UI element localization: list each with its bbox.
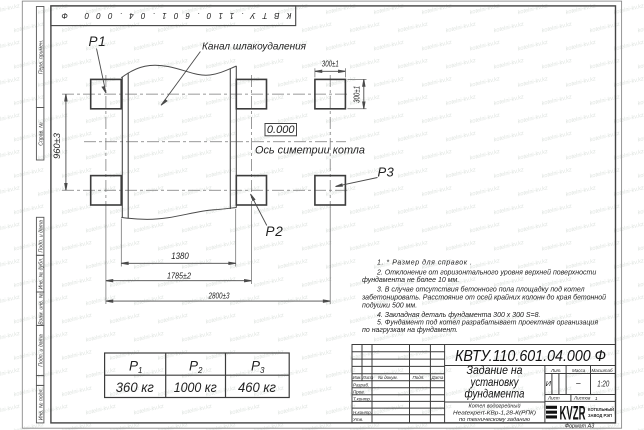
- svg-text:kotelni-kv.kz: kotelni-kv.kz: [469, 113, 501, 126]
- svg-text:kotelni-kv.kz: kotelni-kv.kz: [541, 167, 573, 180]
- svg-text:kotelni-kv.kz: kotelni-kv.kz: [373, 222, 405, 235]
- svg-text:kotelni-kv.kz: kotelni-kv.kz: [493, 240, 525, 253]
- svg-text:Дата: Дата: [431, 375, 444, 380]
- svg-text:kotelni-kv.kz: kotelni-kv.kz: [469, 40, 501, 53]
- svg-text:подушки 500 мм.: подушки 500 мм.: [362, 301, 417, 309]
- svg-text:kotelni-kv.kz: kotelni-kv.kz: [637, 386, 644, 399]
- svg-text:300±1: 300±1: [322, 59, 339, 68]
- svg-text:kotelni-kv.kz: kotelni-kv.kz: [61, 313, 93, 326]
- svg-text:kotelni-kv.kz: kotelni-kv.kz: [277, 404, 309, 417]
- svg-text:kotelni-kv.kz: kotelni-kv.kz: [397, 131, 429, 144]
- svg-text:kotelni-kv.kz: kotelni-kv.kz: [517, 222, 549, 235]
- svg-text:kotelni-kv.kz: kotelni-kv.kz: [445, 167, 477, 180]
- svg-text:kotelni-kv.kz: kotelni-kv.kz: [541, 94, 573, 107]
- svg-text:kotelni-kv.kz: kotelni-kv.kz: [301, 313, 333, 326]
- svg-text:kotelni-kv.kz: kotelni-kv.kz: [301, 276, 333, 289]
- svg-text:1380: 1380: [171, 251, 189, 261]
- svg-text:kotelni-kv.kz: kotelni-kv.kz: [349, 204, 381, 217]
- svg-text:2. Отклонение от горизонтально: 2. Отклонение от горизонтального уровня …: [376, 268, 596, 276]
- svg-text:kotelni-kv.kz: kotelni-kv.kz: [229, 331, 261, 344]
- svg-text:kotelni-kv.kz: kotelni-kv.kz: [109, 240, 141, 253]
- svg-text:kotelni-kv.kz: kotelni-kv.kz: [13, 167, 45, 180]
- svg-text:kotelni-kv.kz: kotelni-kv.kz: [349, 313, 381, 326]
- svg-text:P1: P1: [89, 34, 107, 49]
- svg-text:kotelni-kv.kz: kotelni-kv.kz: [277, 367, 309, 380]
- svg-text:kotelni-kv.kz: kotelni-kv.kz: [517, 149, 549, 162]
- svg-text:kotelni-kv.kz: kotelni-kv.kz: [205, 313, 237, 326]
- svg-text:Н.контр.: Н.контр.: [353, 410, 372, 415]
- svg-text:фундамента не более 10 мм.: фундамента не более 10 мм.: [362, 276, 459, 284]
- svg-text:kotelni-kv.kz: kotelni-kv.kz: [61, 204, 93, 217]
- svg-text:kotelni-kv.kz: kotelni-kv.kz: [349, 131, 381, 144]
- svg-text:kotelni-kv.kz: kotelni-kv.kz: [181, 185, 213, 198]
- svg-text:kotelni-kv.kz: kotelni-kv.kz: [397, 167, 429, 180]
- svg-text:Инв. № подл.: Инв. № подл.: [38, 388, 44, 420]
- svg-text:kotelni-kv.kz: kotelni-kv.kz: [229, 258, 261, 271]
- svg-text:0.000: 0.000: [267, 124, 295, 136]
- svg-text:КОТЕЛЬНЫЙ: КОТЕЛЬНЫЙ: [588, 407, 614, 412]
- svg-text:kotelni-kv.kz: kotelni-kv.kz: [133, 331, 165, 344]
- svg-text:Котел водогрейный: Котел водогрейный: [469, 403, 521, 410]
- svg-text:kotelni-kv.kz: kotelni-kv.kz: [469, 149, 501, 162]
- svg-text:kotelni-kv.kz: kotelni-kv.kz: [157, 58, 189, 71]
- svg-text:kotelni-kv.kz: kotelni-kv.kz: [301, 349, 333, 362]
- svg-text:kotelni-kv.kz: kotelni-kv.kz: [0, 258, 21, 271]
- svg-text:забетонировать. Расстояние от: забетонировать. Расстояние от осей крайн…: [361, 293, 606, 301]
- svg-text:4. Закладная деталь фундамента: 4. Закладная деталь фундамента 300 х 300…: [377, 311, 541, 319]
- svg-text:kotelni-kv.kz: kotelni-kv.kz: [637, 349, 644, 362]
- svg-text:kotelni-kv.kz: kotelni-kv.kz: [445, 22, 477, 35]
- svg-text:kotelni-kv.kz: kotelni-kv.kz: [565, 113, 597, 126]
- svg-text:kotelni-kv.kz: kotelni-kv.kz: [85, 222, 117, 235]
- svg-text:фундамента: фундамента: [465, 387, 525, 401]
- svg-text:kotelni-kv.kz: kotelni-kv.kz: [85, 185, 117, 198]
- svg-text:kotelni-kv.kz: kotelni-kv.kz: [133, 76, 165, 89]
- svg-text:kotelni-kv.kz: kotelni-kv.kz: [205, 276, 237, 289]
- svg-text:kotelni-kv.kz: kotelni-kv.kz: [61, 276, 93, 289]
- svg-text:360 кг: 360 кг: [116, 379, 154, 395]
- svg-text:960±3: 960±3: [52, 133, 62, 159]
- svg-text:Лист: Лист: [362, 375, 374, 380]
- svg-text:kotelni-kv.kz: kotelni-kv.kz: [541, 22, 573, 35]
- svg-text:kotelni-kv.kz: kotelni-kv.kz: [469, 222, 501, 235]
- svg-text:kotelni-kv.kz: kotelni-kv.kz: [637, 167, 644, 180]
- svg-text:kotelni-kv.kz: kotelni-kv.kz: [133, 222, 165, 235]
- svg-text:kotelni-kv.kz: kotelni-kv.kz: [373, 76, 405, 89]
- svg-text:kotelni-kv.kz: kotelni-kv.kz: [301, 240, 333, 253]
- svg-text:kotelni-kv.kz: kotelni-kv.kz: [61, 349, 93, 362]
- svg-text:kotelni-kv.kz: kotelni-kv.kz: [85, 76, 117, 89]
- svg-text:Лист: Лист: [547, 396, 560, 401]
- svg-text:kotelni-kv.kz: kotelni-kv.kz: [253, 58, 285, 71]
- svg-text:kotelni-kv.kz: kotelni-kv.kz: [205, 167, 237, 180]
- svg-text:Перв. примен.: Перв. примен.: [38, 40, 44, 74]
- svg-text:kotelni-kv.kz: kotelni-kv.kz: [637, 58, 644, 71]
- svg-text:Инв. № дубл.: Инв. № дубл.: [38, 258, 44, 290]
- svg-text:kotelni-kv.kz: kotelni-kv.kz: [109, 276, 141, 289]
- svg-text:Подп.: Подп.: [413, 375, 425, 380]
- svg-text:kotelni-kv.kz: kotelni-kv.kz: [85, 258, 117, 271]
- svg-text:Справ. №: Справ. №: [38, 122, 44, 146]
- svg-text:kotelni-kv.kz: kotelni-kv.kz: [397, 94, 429, 107]
- svg-text:kotelni-kv.kz: kotelni-kv.kz: [109, 22, 141, 35]
- svg-text:kotelni-kv.kz: kotelni-kv.kz: [205, 58, 237, 71]
- svg-text:1785±2: 1785±2: [167, 270, 191, 280]
- svg-text:Масса: Масса: [572, 368, 586, 373]
- svg-text:kotelni-kv.kz: kotelni-kv.kz: [421, 76, 453, 89]
- svg-text:kotelni-kv.kz: kotelni-kv.kz: [565, 149, 597, 162]
- svg-text:kotelni-kv.kz: kotelni-kv.kz: [637, 422, 644, 430]
- svg-text:kotelni-kv.kz: kotelni-kv.kz: [301, 22, 333, 35]
- svg-text:kotelni-kv.kz: kotelni-kv.kz: [229, 76, 261, 89]
- svg-text:kotelni-kv.kz: kotelni-kv.kz: [181, 76, 213, 89]
- svg-text:kotelni-kv.kz: kotelni-kv.kz: [541, 58, 573, 71]
- svg-text:kotelni-kv.kz: kotelni-kv.kz: [181, 113, 213, 126]
- svg-text:kotelni-kv.kz: kotelni-kv.kz: [517, 76, 549, 89]
- svg-text:kotelni-kv.kz: kotelni-kv.kz: [253, 276, 285, 289]
- svg-text:kotelni-kv.kz: kotelni-kv.kz: [637, 22, 644, 35]
- svg-text:kotelni-kv.kz: kotelni-kv.kz: [445, 58, 477, 71]
- svg-text:P2: P2: [266, 224, 284, 239]
- svg-text:kotelni-kv.kz: kotelni-kv.kz: [637, 240, 644, 253]
- svg-text:kotelni-kv.kz: kotelni-kv.kz: [205, 22, 237, 35]
- svg-text:kotelni-kv.kz: kotelni-kv.kz: [0, 404, 21, 417]
- svg-text:460 кг: 460 кг: [238, 379, 276, 395]
- svg-text:kotelni-kv.kz: kotelni-kv.kz: [85, 149, 117, 162]
- svg-text:kotelni-kv.kz: kotelni-kv.kz: [373, 40, 405, 53]
- svg-text:kotelni-kv.kz: kotelni-kv.kz: [325, 40, 357, 53]
- svg-text:kotelni-kv.kz: kotelni-kv.kz: [445, 240, 477, 253]
- svg-text:kotelni-kv.kz: kotelni-kv.kz: [565, 40, 597, 53]
- svg-text:kotelni-kv.kz: kotelni-kv.kz: [85, 367, 117, 380]
- svg-text:Взам. инв. №: Взам. инв. №: [38, 292, 44, 324]
- svg-text:И: И: [546, 379, 552, 388]
- svg-text:kotelni-kv.kz: kotelni-kv.kz: [37, 185, 69, 198]
- svg-text:kotelni-kv.kz: kotelni-kv.kz: [0, 76, 21, 89]
- svg-text:kotelni-kv.kz: kotelni-kv.kz: [637, 131, 644, 144]
- svg-text:kotelni-kv.kz: kotelni-kv.kz: [541, 240, 573, 253]
- svg-text:Подп. и дата: Подп. и дата: [38, 220, 44, 253]
- svg-text:kotelni-kv.kz: kotelni-kv.kz: [397, 349, 429, 362]
- svg-text:kotelni-kv.kz: kotelni-kv.kz: [0, 295, 21, 308]
- svg-text:kotelni-kv.kz: kotelni-kv.kz: [109, 313, 141, 326]
- svg-text:Изм.: Изм.: [353, 375, 362, 380]
- svg-text:kotelni-kv.kz: kotelni-kv.kz: [0, 367, 21, 380]
- svg-text:по техническому заданию: по техническому заданию: [459, 417, 530, 423]
- svg-text:kotelni-kv.kz: kotelni-kv.kz: [301, 94, 333, 107]
- svg-text:kotelni-kv.kz: kotelni-kv.kz: [517, 331, 549, 344]
- svg-text:kotelni-kv.kz: kotelni-kv.kz: [541, 204, 573, 217]
- svg-text:kotelni-kv.kz: kotelni-kv.kz: [229, 113, 261, 126]
- svg-text:kotelni-kv.kz: kotelni-kv.kz: [397, 204, 429, 217]
- svg-text:kotelni-kv.kz: kotelni-kv.kz: [517, 40, 549, 53]
- svg-text:kotelni-kv.kz: kotelni-kv.kz: [469, 76, 501, 89]
- svg-text:1: 1: [595, 396, 598, 401]
- svg-text:kotelni-kv.kz: kotelni-kv.kz: [565, 76, 597, 89]
- svg-text:kotelni-kv.kz: kotelni-kv.kz: [61, 240, 93, 253]
- svg-text:KVZR: KVZR: [560, 402, 586, 424]
- svg-text:3. В случае отсутствия бетонно: 3. В случае отсутствия бетонного пола пл…: [377, 285, 585, 293]
- svg-text:kotelni-kv.kz: kotelni-kv.kz: [613, 185, 644, 198]
- svg-text:kotelni-kv.kz: kotelni-kv.kz: [565, 331, 597, 344]
- svg-text:kotelni-kv.kz: kotelni-kv.kz: [37, 76, 69, 89]
- svg-text:kotelni-kv.kz: kotelni-kv.kz: [301, 167, 333, 180]
- svg-text:№ докум.: № докум.: [378, 375, 398, 380]
- svg-text:kotelni-kv.kz: kotelni-kv.kz: [85, 404, 117, 417]
- svg-text:Формат А3: Формат А3: [565, 424, 595, 430]
- svg-text:kotelni-kv.kz: kotelni-kv.kz: [493, 204, 525, 217]
- svg-text:kotelni-kv.kz: kotelni-kv.kz: [61, 58, 93, 71]
- svg-text:kotelni-kv.kz: kotelni-kv.kz: [0, 149, 21, 162]
- svg-text:P1: P1: [129, 359, 142, 376]
- svg-text:Утв.: Утв.: [353, 417, 363, 422]
- svg-text:kotelni-kv.kz: kotelni-kv.kz: [133, 113, 165, 126]
- svg-text:kotelni-kv.kz: kotelni-kv.kz: [349, 22, 381, 35]
- svg-text:kotelni-kv.kz: kotelni-kv.kz: [205, 240, 237, 253]
- svg-text:Масштаб: Масштаб: [592, 368, 613, 373]
- svg-text:kotelni-kv.kz: kotelni-kv.kz: [253, 22, 285, 35]
- svg-text:по нагрузкам на фундамент.: по нагрузкам на фундамент.: [362, 326, 458, 334]
- svg-text:P2: P2: [189, 359, 203, 376]
- svg-text:kotelni-kv.kz: kotelni-kv.kz: [397, 240, 429, 253]
- svg-text:kotelni-kv.kz: kotelni-kv.kz: [61, 22, 93, 35]
- svg-text:kotelni-kv.kz: kotelni-kv.kz: [349, 58, 381, 71]
- svg-text:kotelni-kv.kz: kotelni-kv.kz: [445, 204, 477, 217]
- svg-text:kotelni-kv.kz: kotelni-kv.kz: [373, 185, 405, 198]
- svg-text:Лит.: Лит.: [550, 368, 562, 373]
- svg-text:kotelni-kv.kz: kotelni-kv.kz: [613, 3, 644, 16]
- svg-text:kotelni-kv.kz: kotelni-kv.kz: [301, 386, 333, 399]
- svg-text:kotelni-kv.kz: kotelni-kv.kz: [373, 113, 405, 126]
- svg-text:300±1: 300±1: [353, 86, 362, 103]
- svg-text:kotelni-kv.kz: kotelni-kv.kz: [61, 386, 93, 399]
- svg-text:kotelni-kv.kz: kotelni-kv.kz: [637, 204, 644, 217]
- svg-text:kotelni-kv.kz: kotelni-kv.kz: [13, 94, 45, 107]
- svg-text:kotelni-kv.kz: kotelni-kv.kz: [373, 149, 405, 162]
- svg-text:kotelni-kv.kz: kotelni-kv.kz: [613, 113, 644, 126]
- svg-text:kotelni-kv.kz: kotelni-kv.kz: [253, 94, 285, 107]
- svg-text:kotelni-kv.kz: kotelni-kv.kz: [277, 331, 309, 344]
- svg-text:kotelni-kv.kz: kotelni-kv.kz: [109, 167, 141, 180]
- svg-text:kotelni-kv.kz: kotelni-kv.kz: [493, 167, 525, 180]
- svg-text:kotelni-kv.kz: kotelni-kv.kz: [493, 22, 525, 35]
- svg-text:kotelni-kv.kz: kotelni-kv.kz: [421, 185, 453, 198]
- svg-text:kotelni-kv.kz: kotelni-kv.kz: [229, 404, 261, 417]
- svg-text:kotelni-kv.kz: kotelni-kv.kz: [445, 94, 477, 107]
- svg-text:Разраб.: Разраб.: [353, 383, 369, 388]
- svg-text:kotelni-kv.kz: kotelni-kv.kz: [349, 240, 381, 253]
- svg-text:kotelni-kv.kz: kotelni-kv.kz: [133, 185, 165, 198]
- svg-text:kotelni-kv.kz: kotelni-kv.kz: [397, 22, 429, 35]
- svg-text:kotelni-kv.kz: kotelni-kv.kz: [469, 185, 501, 198]
- svg-text:kotelni-kv.kz: kotelni-kv.kz: [541, 131, 573, 144]
- svg-text:kotelni-kv.kz: kotelni-kv.kz: [613, 331, 644, 344]
- svg-text:ЗАВОД РЭП: ЗАВОД РЭП: [588, 413, 612, 418]
- svg-text:kotelni-kv.kz: kotelni-kv.kz: [613, 258, 644, 271]
- svg-text:Подп. и дата: Подп. и дата: [38, 334, 44, 367]
- svg-text:kotelni-kv.kz: kotelni-kv.kz: [0, 40, 21, 53]
- svg-text:kotelni-kv.kz: kotelni-kv.kz: [517, 185, 549, 198]
- svg-text:kotelni-kv.kz: kotelni-kv.kz: [613, 404, 644, 417]
- svg-text:kotelni-kv.kz: kotelni-kv.kz: [613, 222, 644, 235]
- svg-text:kotelni-kv.kz: kotelni-kv.kz: [277, 76, 309, 89]
- svg-text:1:20: 1:20: [597, 379, 609, 388]
- svg-text:Т.контр.: Т.контр.: [353, 397, 371, 402]
- svg-text:2800±3: 2800±3: [208, 291, 230, 301]
- svg-text:Пров.: Пров.: [353, 390, 365, 395]
- svg-text:kotelni-kv.kz: kotelni-kv.kz: [613, 40, 644, 53]
- svg-text:kotelni-kv.kz: kotelni-kv.kz: [181, 222, 213, 235]
- svg-text:kotelni-kv.kz: kotelni-kv.kz: [13, 22, 45, 35]
- svg-text:kotelni-kv.kz: kotelni-kv.kz: [229, 185, 261, 198]
- svg-text:kotelni-kv.kz: kotelni-kv.kz: [0, 113, 21, 126]
- svg-text:kotelni-kv.kz: kotelni-kv.kz: [349, 349, 381, 362]
- svg-text:kotelni-kv.kz: kotelni-kv.kz: [397, 58, 429, 71]
- svg-text:kotelni-kv.kz: kotelni-kv.kz: [637, 313, 644, 326]
- svg-text:kotelni-kv.kz: kotelni-kv.kz: [493, 131, 525, 144]
- svg-text:Канал шлакоудаления: Канал шлакоудаления: [202, 41, 306, 53]
- svg-text:kotelni-kv.kz: kotelni-kv.kz: [133, 404, 165, 417]
- svg-text:kotelni-kv.kz: kotelni-kv.kz: [277, 185, 309, 198]
- svg-text:Ось симетрии котла: Ось симетрии котла: [255, 145, 365, 157]
- svg-text:kotelni-kv.kz: kotelni-kv.kz: [181, 404, 213, 417]
- svg-text:kotelni-kv.kz: kotelni-kv.kz: [565, 222, 597, 235]
- svg-text:kotelni-kv.kz: kotelni-kv.kz: [493, 94, 525, 107]
- svg-text:kotelni-kv.kz: kotelni-kv.kz: [253, 167, 285, 180]
- svg-text:kotelni-kv.kz: kotelni-kv.kz: [469, 331, 501, 344]
- svg-text:kotelni-kv.kz: kotelni-kv.kz: [0, 3, 21, 16]
- svg-text:kotelni-kv.kz: kotelni-kv.kz: [493, 58, 525, 71]
- svg-text:kotelni-kv.kz: kotelni-kv.kz: [0, 185, 21, 198]
- svg-text:kotelni-kv.kz: kotelni-kv.kz: [133, 40, 165, 53]
- svg-text:kotelni-kv.kz: kotelni-kv.kz: [637, 94, 644, 107]
- svg-text:kotelni-kv.kz: kotelni-kv.kz: [421, 113, 453, 126]
- svg-text:kotelni-kv.kz: kotelni-kv.kz: [0, 222, 21, 235]
- svg-text:kotelni-kv.kz: kotelni-kv.kz: [205, 349, 237, 362]
- svg-text:kotelni-kv.kz: kotelni-kv.kz: [517, 113, 549, 126]
- svg-text:–: –: [575, 379, 581, 388]
- svg-text:kotelni-kv.kz: kotelni-kv.kz: [133, 149, 165, 162]
- svg-text:5. Фундамент под котел разраба: 5. Фундамент под котел разрабатывает про…: [377, 318, 598, 326]
- svg-text:kotelni-kv.kz: kotelni-kv.kz: [325, 331, 357, 344]
- svg-text:kotelni-kv.kz: kotelni-kv.kz: [637, 276, 644, 289]
- svg-text:kotelni-kv.kz: kotelni-kv.kz: [157, 313, 189, 326]
- svg-text:kotelni-kv.kz: kotelni-kv.kz: [181, 149, 213, 162]
- svg-text:Heatexpert-КВр-1,28-К(РПК): Heatexpert-КВр-1,28-К(РПК): [453, 410, 536, 416]
- svg-text:kotelni-kv.kz: kotelni-kv.kz: [613, 295, 644, 308]
- svg-text:kotelni-kv.kz: kotelni-kv.kz: [445, 131, 477, 144]
- svg-text:1. * Размер для справок .: 1. * Размер для справок .: [377, 259, 473, 267]
- svg-text:kotelni-kv.kz: kotelni-kv.kz: [613, 367, 644, 380]
- svg-text:kotelni-kv.kz: kotelni-kv.kz: [421, 149, 453, 162]
- svg-text:1000 кг: 1000 кг: [174, 379, 217, 395]
- svg-text:kotelni-kv.kz: kotelni-kv.kz: [157, 349, 189, 362]
- svg-text:kotelni-kv.kz: kotelni-kv.kz: [613, 149, 644, 162]
- svg-text:kotelni-kv.kz: kotelni-kv.kz: [133, 258, 165, 271]
- svg-text:kotelni-kv.kz: kotelni-kv.kz: [157, 22, 189, 35]
- svg-text:P3: P3: [378, 164, 395, 179]
- svg-text:kotelni-kv.kz: kotelni-kv.kz: [37, 367, 69, 380]
- svg-text:kotelni-kv.kz: kotelni-kv.kz: [277, 258, 309, 271]
- svg-text:kotelni-kv.kz: kotelni-kv.kz: [229, 222, 261, 235]
- svg-text:kotelni-kv.kz: kotelni-kv.kz: [205, 94, 237, 107]
- svg-text:Листов: Листов: [573, 396, 591, 401]
- svg-text:kotelni-kv.kz: kotelni-kv.kz: [13, 204, 45, 217]
- svg-text:P3: P3: [251, 359, 265, 376]
- svg-text:kotelni-kv.kz: kotelni-kv.kz: [109, 94, 141, 107]
- svg-text:kotelni-kv.kz: kotelni-kv.kz: [565, 185, 597, 198]
- svg-text:kotelni-kv.kz: kotelni-kv.kz: [421, 222, 453, 235]
- svg-text:kotelni-kv.kz: kotelni-kv.kz: [613, 76, 644, 89]
- svg-text:kotelni-kv.kz: kotelni-kv.kz: [85, 331, 117, 344]
- svg-text:kotelni-kv.kz: kotelni-kv.kz: [157, 167, 189, 180]
- svg-text:kotelni-kv.kz: kotelni-kv.kz: [85, 113, 117, 126]
- svg-text:kotelni-kv.kz: kotelni-kv.kz: [253, 240, 285, 253]
- svg-text:kotelni-kv.kz: kotelni-kv.kz: [253, 313, 285, 326]
- svg-text:kotelni-kv.kz: kotelni-kv.kz: [181, 331, 213, 344]
- svg-text:kotelni-kv.kz: kotelni-kv.kz: [0, 331, 21, 344]
- svg-text:kotelni-kv.kz: kotelni-kv.kz: [421, 40, 453, 53]
